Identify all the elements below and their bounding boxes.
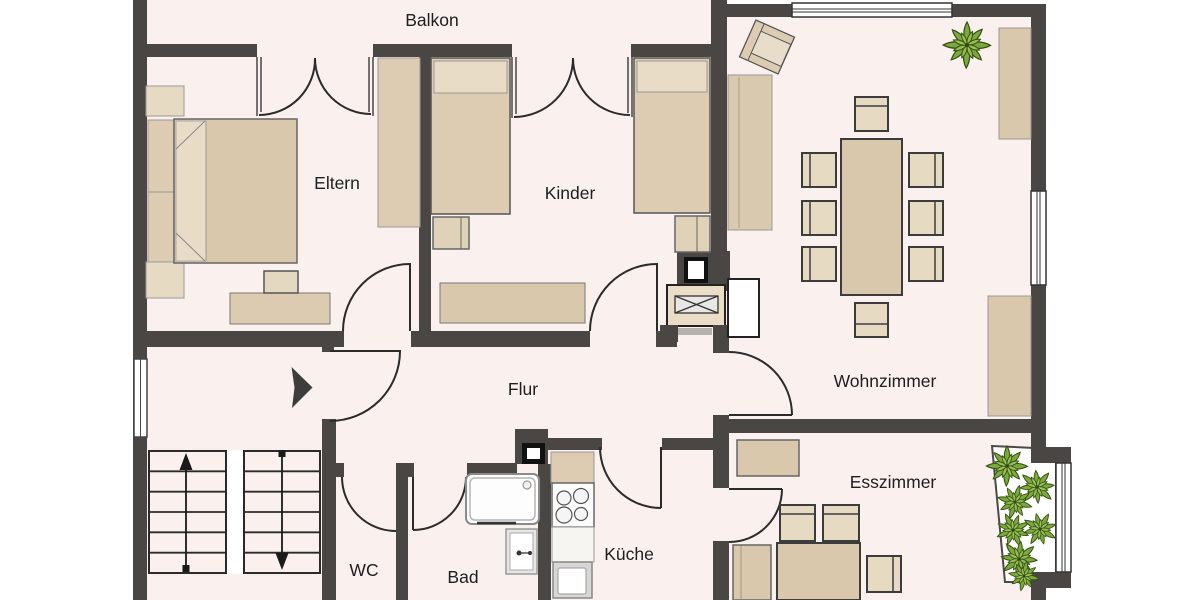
- svg-text:Wohnzimmer: Wohnzimmer: [834, 371, 937, 391]
- svg-text:Eltern: Eltern: [314, 173, 360, 193]
- svg-text:Bad: Bad: [447, 567, 478, 587]
- svg-text:Balkon: Balkon: [405, 10, 459, 30]
- svg-text:Kinder: Kinder: [545, 183, 596, 203]
- svg-text:WC: WC: [349, 560, 378, 580]
- svg-text:Flur: Flur: [508, 379, 538, 399]
- svg-text:Esszimmer: Esszimmer: [850, 472, 937, 492]
- svg-text:Küche: Küche: [604, 544, 654, 564]
